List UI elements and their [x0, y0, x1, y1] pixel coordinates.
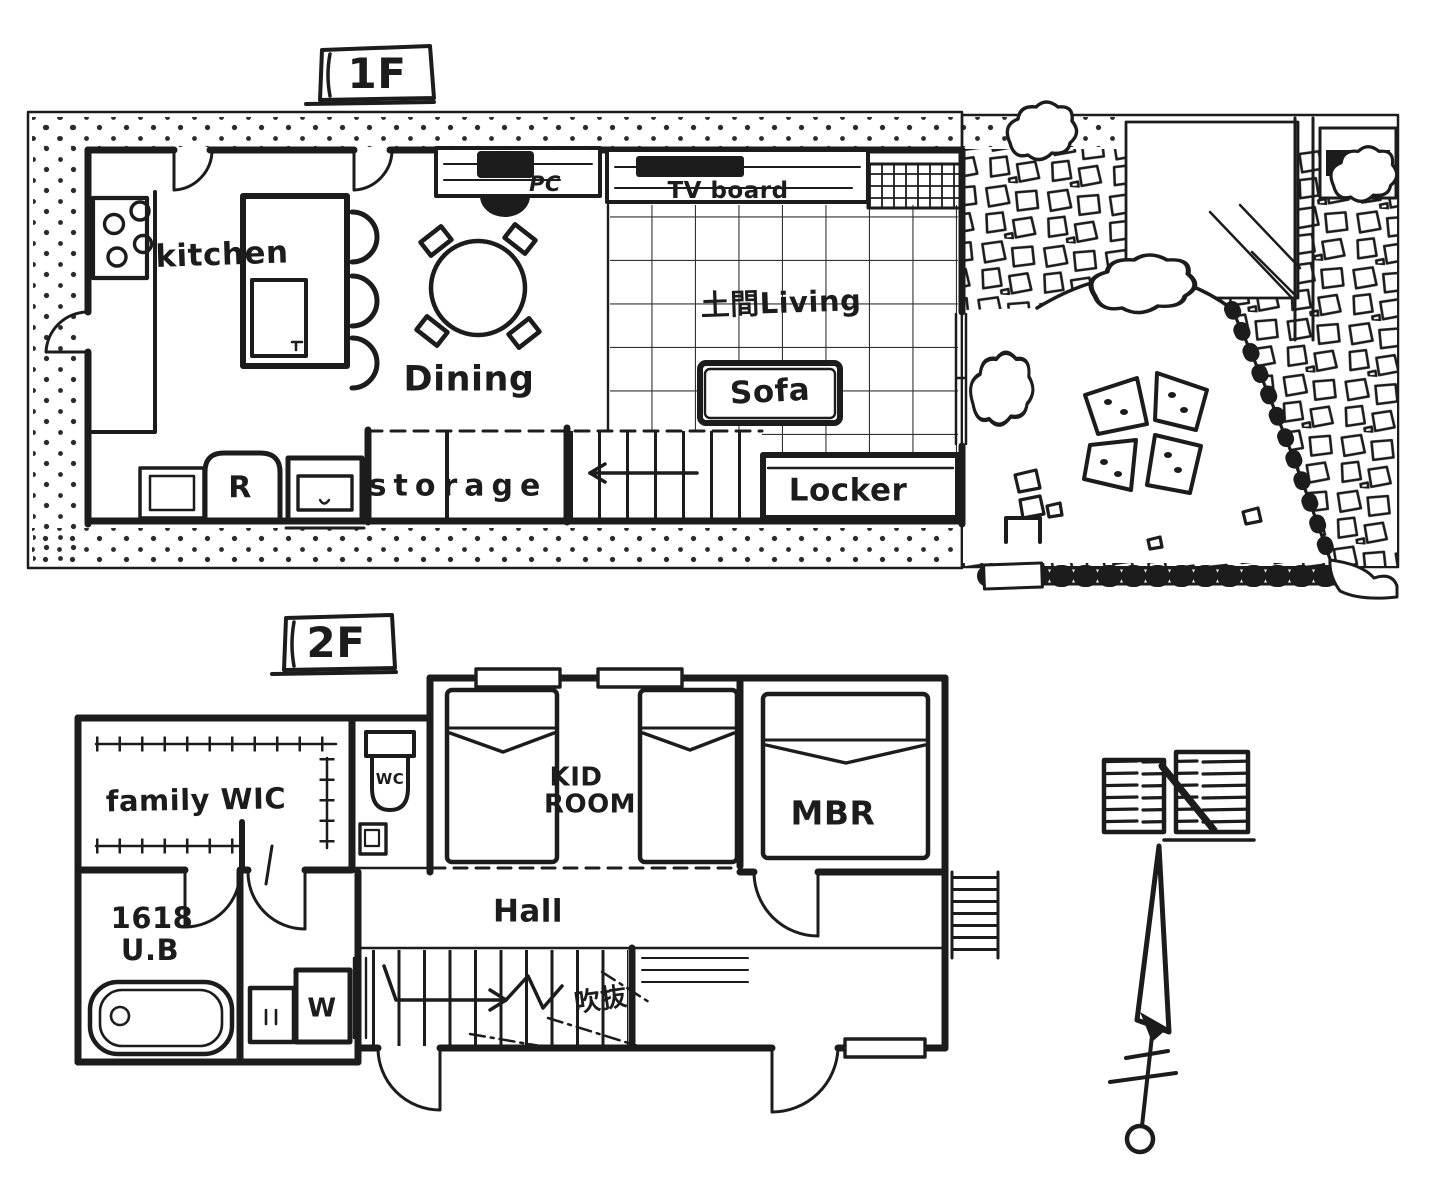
pc-label: PC: [529, 173, 561, 195]
bathtub-icon: [90, 982, 232, 1054]
storage-label: storage: [369, 470, 548, 502]
kid-room-label-line2: ROOM: [544, 791, 636, 818]
laptop-icon: [477, 151, 534, 178]
kitchen-label: kitchen: [155, 236, 289, 273]
pc-desk: [436, 148, 600, 217]
laundry-box: [250, 988, 294, 1042]
wc-label: WC: [376, 772, 405, 788]
dining-label: Dining: [404, 362, 535, 399]
unit-bath-label-line1: 1618: [111, 903, 194, 933]
wc-sink: [360, 824, 386, 854]
mbr-label: MBR: [791, 797, 876, 832]
compass-needle: [1110, 846, 1176, 1152]
tv-icon: [636, 156, 744, 177]
floorplan-sketch: 1F kitchen Dining PC TV board 土間Living S…: [0, 0, 1447, 1194]
shelf-grid: [868, 164, 960, 208]
island-stools: [352, 212, 377, 388]
floor1-title: 1F: [348, 52, 407, 96]
compass-north: [1104, 752, 1254, 1152]
family-wic-label: family WIC: [106, 783, 287, 817]
beds: [447, 690, 928, 862]
washer-label: W: [307, 995, 336, 1022]
tree-icon: [1007, 102, 1076, 160]
dining-area: [417, 224, 540, 347]
balcony-louver: [952, 872, 998, 958]
kid-room-label-line1: KID: [550, 764, 603, 791]
kid-bed-1: [447, 690, 557, 862]
desk-chair: [480, 196, 530, 217]
hall-label: Hall: [493, 896, 563, 929]
tv-board-label: TV board: [667, 179, 788, 203]
mbr-bed: [763, 694, 928, 858]
locker-label: Locker: [789, 475, 908, 508]
doma-living-label: 土間Living: [700, 285, 862, 321]
refrigerator-label: R: [228, 472, 252, 504]
sofa-label: Sofa: [729, 374, 811, 411]
dining-table: [431, 241, 525, 335]
compass-n-left-bar: [1104, 760, 1164, 832]
kid-bed-2: [640, 690, 737, 862]
floor2-title: 2F: [307, 621, 366, 665]
unit-bath-label-line2: U.B: [121, 935, 179, 965]
floor2-plan: [78, 615, 998, 1112]
